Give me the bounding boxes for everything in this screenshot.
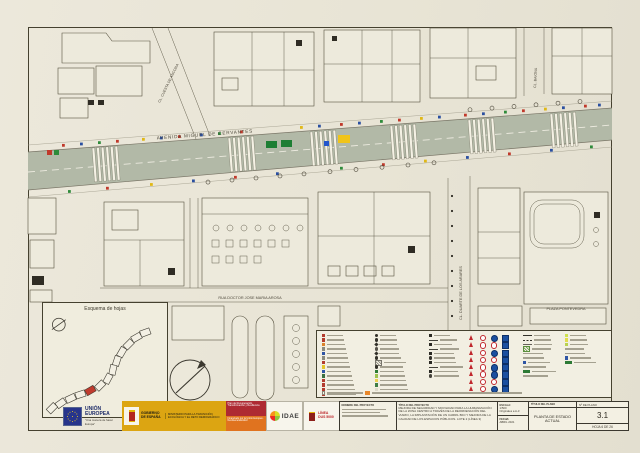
plan-number-cell: Nº DE PLANO 3.1 HOJA 6 DE 26 [576, 401, 629, 431]
project-name-lines [342, 409, 395, 417]
plan-title: PLANTA DE ESTADO ACTUAL [529, 408, 576, 430]
project-name-header: NOMBRE DEL PROYECTO [342, 404, 395, 407]
eu-logo: UNIÓN EUROPEA "Una manera de hacer Europ… [63, 401, 122, 431]
spain-crest-icon [124, 407, 139, 425]
eu-title: UNIÓN EUROPEA [85, 407, 122, 418]
street-diagonal-label: CL. CUESTA DE ANCORA [157, 63, 180, 104]
street-top-right-label: CL. BAIONA [533, 67, 538, 88]
government-name: GOBIERNO DE ESPAÑA [141, 412, 163, 420]
sheet-number: HOJA 6 DE 26 [577, 424, 628, 430]
eu-flag-icon [63, 407, 82, 426]
inset-title: Esquema de hojas [43, 306, 167, 312]
idae-logo: IDAE [266, 401, 303, 431]
project-title-cell: TÍTULO DEL PROYECTO MEJORA DE SEGURIDAD … [396, 401, 498, 431]
title-block-band: UNIÓN EUROPEA "Una manera de hacer Europ… [63, 401, 629, 431]
ministry-logo: GOBIERNO DE ESPAÑA MINISTERIO PARA LA TR… [122, 401, 226, 431]
idae-name: IDAE [282, 413, 300, 420]
plaza-label: PLAZA PONTEVEDRA [546, 307, 586, 311]
dus-5000-logo: LÍNEA DUS 5000 [303, 401, 340, 431]
idae-pinwheel-icon [270, 411, 280, 421]
plan-sheet: AVENIDA MIGUEL DE CERVANTES CL. CUESTA D… [0, 0, 640, 453]
plan-number: 3.1 [577, 408, 628, 424]
eu-subtitle: "Una manera de hacer Europa" [85, 418, 122, 426]
sheet-index-graphic [43, 303, 167, 417]
plan-title-cell: TÍTULO DEL PLANO PLANTA DE ESTADO ACTUAL [528, 401, 577, 431]
next-generation-text: Financiado por la Unión Europea · NextGe… [226, 416, 266, 431]
street-vertical-label: CL. DUARTE DE LOS ARARES [459, 266, 463, 320]
originals-note: Originales a A-3 [500, 410, 527, 413]
crest-icon [309, 412, 315, 421]
dus-line2: DUS 5000 [318, 416, 334, 420]
recovery-plan-logo: Plan de Recuperación, Transformación y R… [226, 401, 266, 431]
recovery-plan-text: Plan de Recuperación, Transformación y R… [226, 401, 266, 416]
scale-date-cell: ESCALA: 1/500 Originales a A-3 FECHA: AB… [497, 401, 529, 431]
date-value: ABRIL 2021 [500, 421, 527, 424]
project-title-text: MEJORA DE SEGURIDAD Y MOVILIDAD PARA LA … [399, 407, 496, 422]
north-arrow [170, 360, 210, 400]
legend-box [316, 330, 612, 398]
ministry-name: MINISTERIO PARA LA TRANSICIÓN ECOLÓGICA … [165, 413, 224, 419]
street-bottom-label: RUA DOCTOR JOSE MARIA AROSA [218, 296, 282, 300]
project-name-cell: NOMBRE DEL PROYECTO [339, 401, 397, 431]
